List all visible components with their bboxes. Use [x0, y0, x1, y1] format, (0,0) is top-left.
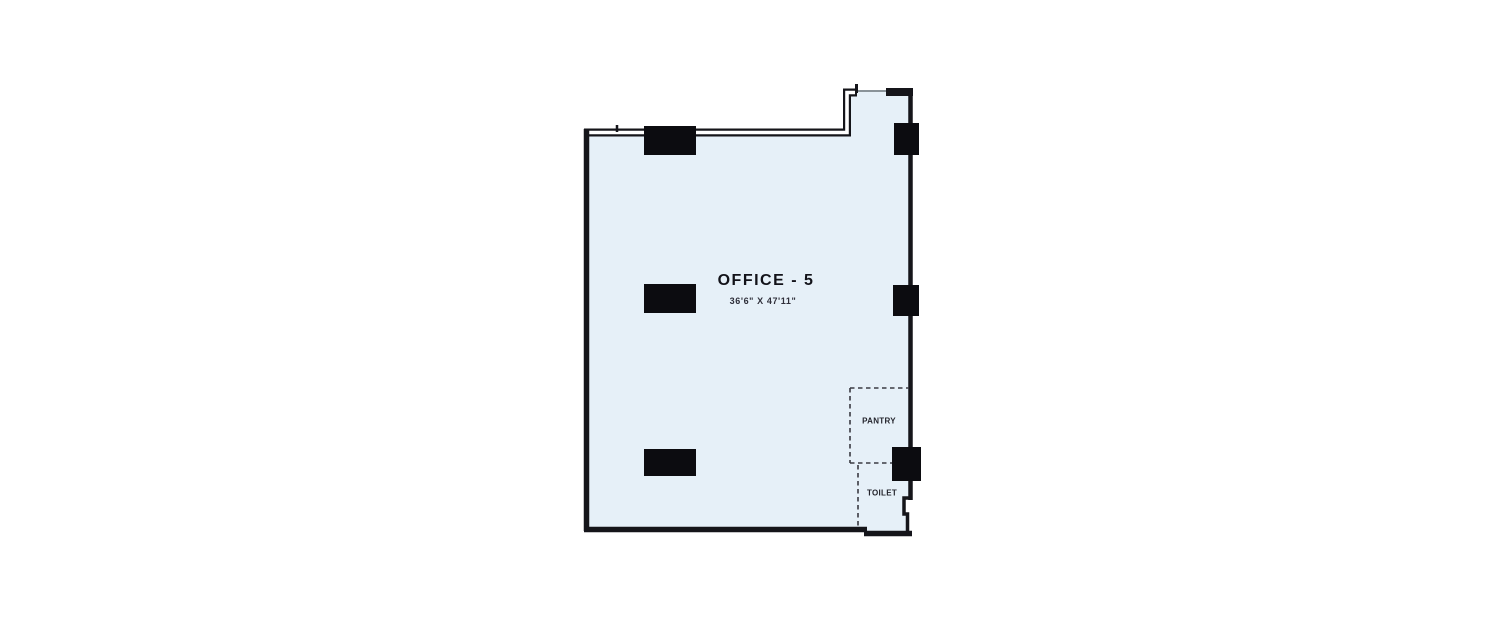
- floor-plan-canvas: OFFICE - 5 36'6" X 47'11" PANTRY TOILET: [0, 0, 1500, 625]
- top-wall-core: [584, 93, 855, 133]
- column-bottom-left: [644, 449, 696, 476]
- column-right-top: [894, 123, 919, 155]
- room-dimensions: 36'6" X 47'11": [730, 296, 797, 306]
- pantry-label: PANTRY: [862, 417, 896, 426]
- office-room-area: [585, 92, 911, 532]
- top-wall-outer: [584, 93, 857, 133]
- room-title: OFFICE - 5: [718, 272, 815, 290]
- toilet-label: TOILET: [867, 489, 897, 498]
- column-right-pantry: [892, 447, 921, 481]
- floor-plan-drawing: [0, 0, 1500, 625]
- column-right-middle: [893, 285, 919, 316]
- column-mid-left: [644, 284, 696, 313]
- column-top-wall: [644, 126, 696, 155]
